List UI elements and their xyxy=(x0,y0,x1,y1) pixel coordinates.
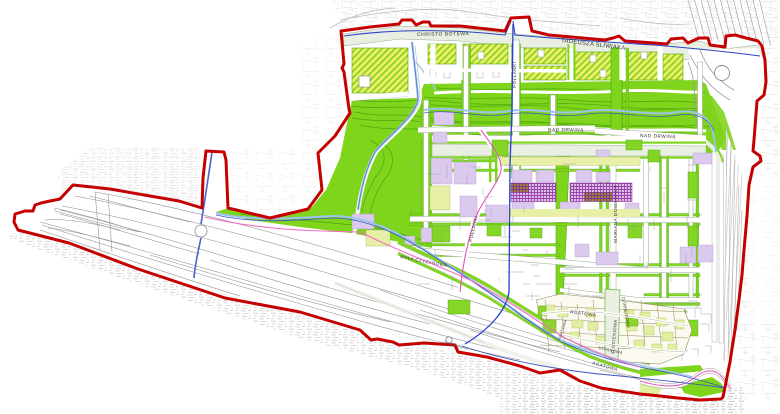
svg-text:NAD DRWINĄ: NAD DRWINĄ xyxy=(548,127,584,134)
svg-text:PÓŁŁANKI: PÓŁŁANKI xyxy=(511,62,517,88)
svg-text:NAD DRWINĄ: NAD DRWINĄ xyxy=(640,133,676,140)
svg-text:MARIANA DOMAGAŁY: MARIANA DOMAGAŁY xyxy=(613,185,619,243)
svg-text:CHRISTO BOTEWA: CHRISTO BOTEWA xyxy=(417,31,470,38)
